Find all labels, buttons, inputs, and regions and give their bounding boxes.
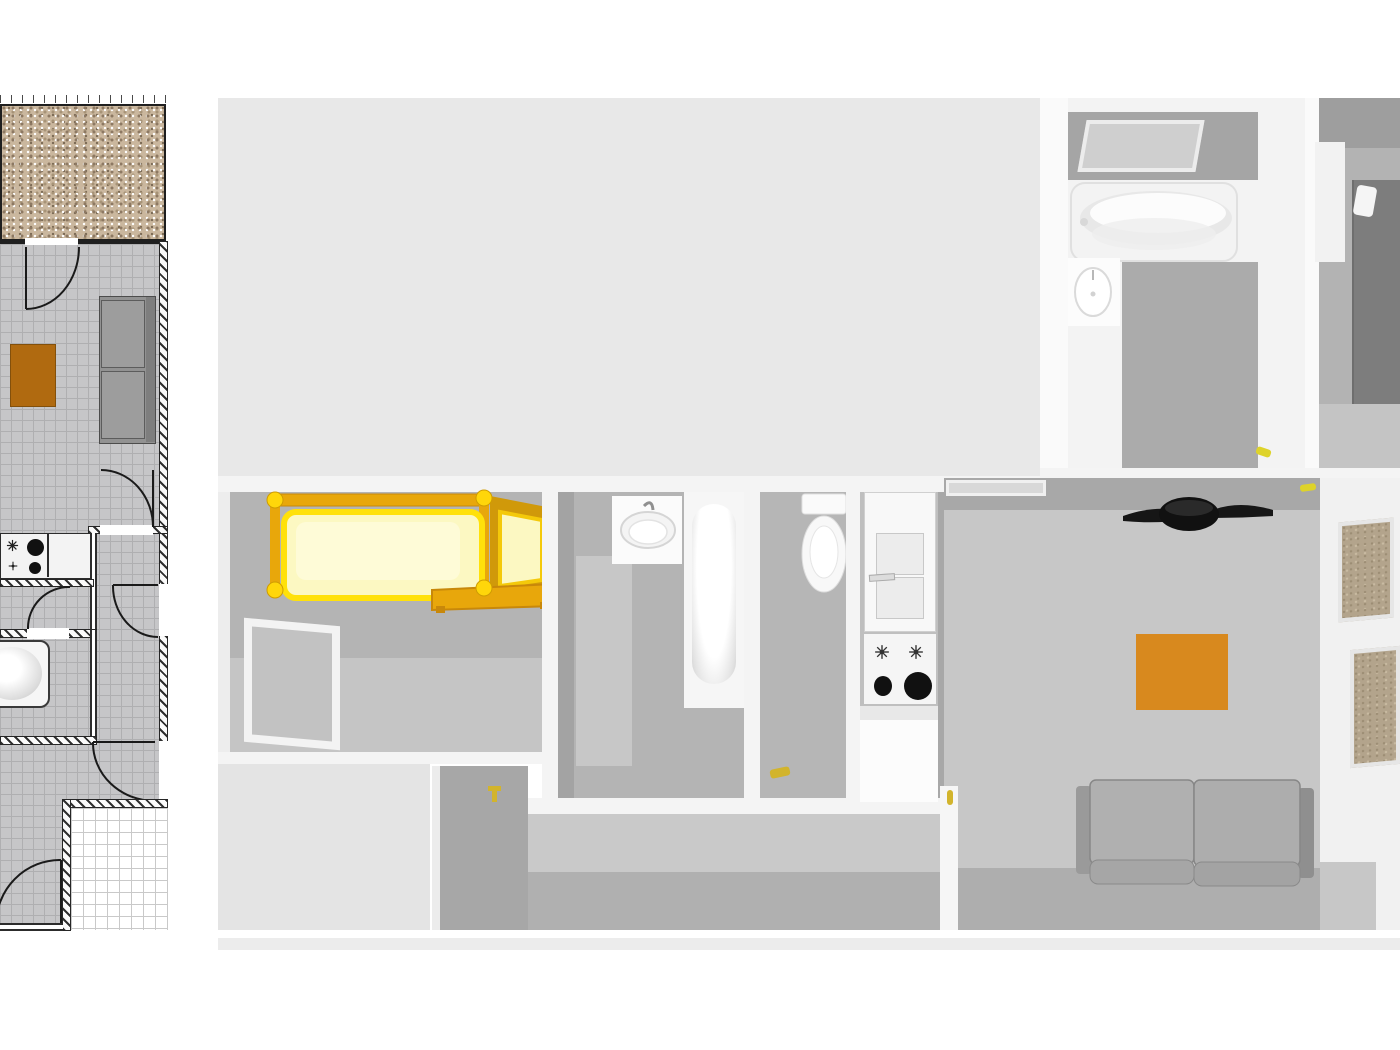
bathroom-top-inner-wall-3d [1122, 262, 1258, 480]
door-leaf-edge [432, 766, 440, 936]
tan-door-panel-3d [1350, 646, 1400, 768]
fridge-3d [864, 492, 936, 632]
rug-3d [1136, 634, 1228, 710]
ceiling-fan-3d [1121, 496, 1275, 532]
fridge-freezer-door [876, 533, 924, 575]
wall-wc-kitchen-3d [846, 476, 860, 802]
terrace-floor-3d [218, 764, 430, 936]
wall-bath-wc-3d [744, 476, 760, 802]
living-right-wall-3d [1320, 478, 1400, 930]
wall-terrace-bath-3d [1040, 98, 1068, 480]
tan-door-panel-3d [1338, 518, 1394, 623]
yellow-bed-3d [266, 488, 556, 616]
bathtub-top-3d [1070, 182, 1238, 262]
living-floor-corner-3d [1320, 862, 1376, 930]
round-sink-basin [1068, 258, 1120, 326]
hallway-floor-dark-3d [528, 872, 942, 932]
vertical-bathtub-basin [692, 504, 736, 684]
hallway-floor-3d [528, 814, 942, 872]
hall-living-wall-3d [940, 786, 958, 932]
stove-3d [864, 634, 936, 704]
bathroom-mid-floor-3d [576, 556, 632, 766]
fridge-door [876, 577, 924, 619]
toilet-3d [798, 492, 848, 596]
burner-small-3d [874, 676, 892, 696]
round-sink-3d [1068, 258, 1120, 326]
door-leaf-3d [432, 766, 528, 936]
view-3d [0, 0, 1400, 1050]
floorplan-screenshot [0, 0, 1400, 1050]
sofa-3d [1076, 774, 1314, 888]
wall-window-3d [244, 618, 340, 750]
burner-large-3d [904, 672, 932, 700]
outer-edge-bottom-3d [218, 938, 1400, 950]
kitchen-counter-3d [860, 706, 938, 802]
skylight-window-3d [1077, 120, 1204, 172]
outer-wall-bottom-3d [218, 930, 1400, 938]
bedroom-bottom-wall-3d [218, 752, 556, 764]
door-handle-mark-hall [492, 788, 497, 802]
bedroom-right-closet-3d [1315, 142, 1345, 262]
square-sink-3d [612, 496, 682, 564]
bedroom-yellow-left-edge-3d [218, 492, 230, 756]
stove-knob-icon [874, 644, 890, 660]
bathroom-mid-inner-wall-3d [558, 492, 574, 802]
vertical-bathtub-3d [684, 492, 744, 708]
ceiling-vent-3d [946, 480, 1046, 496]
terrace-open-area-3d [218, 98, 1040, 480]
door-handle-mark-wall [947, 790, 953, 805]
stove-knob-icon [908, 644, 924, 660]
bedroom-right-ceiling-3d [1319, 98, 1400, 148]
kitchen-counter-top-face [860, 706, 938, 720]
